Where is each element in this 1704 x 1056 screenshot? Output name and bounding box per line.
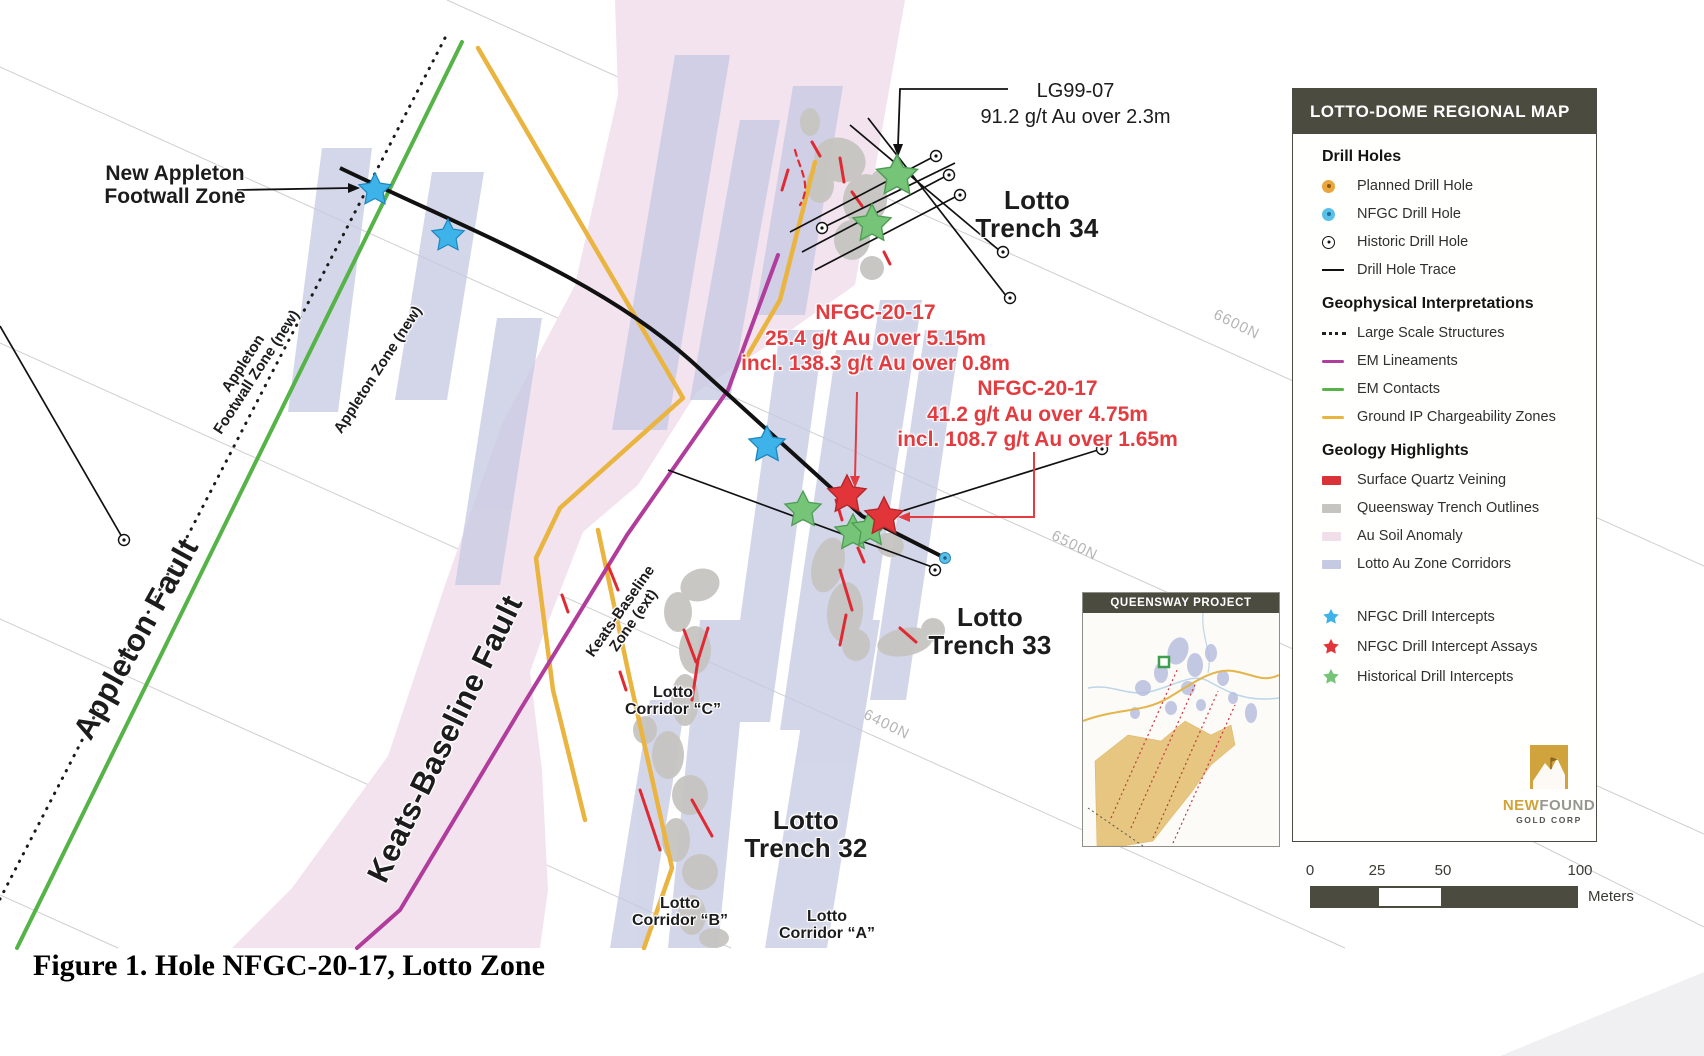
- queensway-project-inset-map: QUEENSWAY PROJECT: [1082, 592, 1280, 847]
- newfound-wordmark: NEWFOUND: [1499, 797, 1599, 814]
- annotation-lg99-07: LG99-07 91.2 g/t Au over 2.3m: [953, 78, 1198, 130]
- legend-section-drill-holes: Drill Holes: [1322, 148, 1588, 166]
- legend-item-trench-outlines: Queensway Trench Outlines: [1322, 494, 1588, 522]
- legend-item-em-lineaments: EM Lineaments: [1322, 347, 1588, 375]
- figure-caption: Figure 1. Hole NFGC-20-17, Lotto Zone: [33, 949, 545, 983]
- inset-location-marker: [1159, 657, 1169, 667]
- red-star-icon: [1322, 638, 1348, 656]
- legend-item-au-soil-anomaly: Au Soil Anomaly: [1322, 522, 1588, 550]
- em-contacts-icon: [1322, 388, 1348, 391]
- inset-title: QUEENSWAY PROJECT: [1083, 593, 1279, 613]
- label-lotto-corridor-a: Lotto Corridor “A”: [752, 908, 902, 943]
- scale-tick-0: 0: [1306, 862, 1314, 879]
- nfgc-drill-hole-collar: [940, 553, 951, 564]
- annotation-nfgc-20-17-b: NFGC-20-17 41.2 g/t Au over 4.75m incl. …: [885, 376, 1190, 453]
- legend-item-planned-drill-hole: Planned Drill Hole: [1322, 172, 1588, 200]
- label-new-appleton-footwall-zone: New Appleton Footwall Zone: [95, 163, 255, 208]
- legend-item-ground-ip: Ground IP Chargeability Zones: [1322, 403, 1588, 431]
- newfound-logo-mark: [1530, 745, 1568, 789]
- label-lotto-corridor-c: Lotto Corridor “C”: [598, 684, 748, 719]
- planned-drill-hole-icon: [1322, 180, 1348, 193]
- historic-drill-hole-icon: [1322, 236, 1348, 249]
- label-lotto-trench-33: Lotto Trench 33: [890, 603, 1090, 659]
- scale-unit-label: Meters: [1588, 888, 1634, 905]
- scale-bar: 0 25 50 100 Meters: [1285, 860, 1704, 920]
- legend-item-historical-intercepts: Historical Drill Intercepts: [1322, 662, 1588, 692]
- figure-canvas: New Appleton Footwall Zone Appleton Foot…: [0, 0, 1704, 1056]
- legend-panel: LOTTO-DOME REGIONAL MAP Drill Holes Plan…: [1292, 88, 1597, 842]
- blue-star-icon: [1322, 608, 1348, 626]
- legend-item-lotto-corridors: Lotto Au Zone Corridors: [1322, 550, 1588, 578]
- label-lotto-trench-34: Lotto Trench 34: [937, 186, 1137, 242]
- queensway-trench-outlines-icon: [1322, 504, 1348, 513]
- legend-item-drill-hole-trace: Drill Hole Trace: [1322, 256, 1588, 284]
- newfound-gold-logo: NEWFOUND GOLD CORP: [1499, 745, 1599, 825]
- legend-section-geophysical: Geophysical Interpretations: [1322, 295, 1588, 313]
- label-lotto-corridor-b: Lotto Corridor “B”: [605, 895, 755, 930]
- au-soil-anomaly-icon: [1322, 532, 1348, 541]
- legend-section-geology: Geology Highlights: [1322, 442, 1588, 460]
- legend-item-surface-quartz: Surface Quartz Veining: [1322, 466, 1588, 494]
- surface-quartz-veining-icon: [1322, 476, 1348, 485]
- ground-ip-chargeability-icon: [1322, 416, 1348, 419]
- scale-tick-25: 25: [1369, 862, 1386, 879]
- annotation-nfgc-20-17-a: NFGC-20-17 25.4 g/t Au over 5.15m incl. …: [723, 300, 1028, 377]
- legend-title: LOTTO-DOME REGIONAL MAP: [1293, 89, 1596, 134]
- legend-item-nfgc-intercepts: NFGC Drill Intercepts: [1322, 602, 1588, 632]
- em-lineaments-icon: [1322, 360, 1348, 363]
- legend-item-large-scale-structures: Large Scale Structures: [1322, 319, 1588, 347]
- legend-item-em-contacts: EM Contacts: [1322, 375, 1588, 403]
- label-lotto-trench-32: Lotto Trench 32: [706, 806, 906, 862]
- nfgc-drill-hole-icon: [1322, 208, 1348, 221]
- lotto-au-zone-corridors-icon: [1322, 560, 1348, 569]
- gold-corp-subtitle: GOLD CORP: [1499, 815, 1599, 825]
- legend-item-nfgc-intercept-assays: NFGC Drill Intercept Assays: [1322, 632, 1588, 662]
- large-scale-structures-icon: [1322, 332, 1348, 335]
- green-star-icon: [1322, 668, 1348, 686]
- page-corner-wedge: [1500, 972, 1704, 1056]
- inset-map-graphic: [1083, 613, 1279, 846]
- scale-tick-100: 100: [1567, 862, 1592, 879]
- scale-bar-middle-segment: [1377, 886, 1443, 908]
- legend-item-historic-drill-hole: Historic Drill Hole: [1322, 228, 1588, 256]
- scale-tick-50: 50: [1435, 862, 1452, 879]
- drill-hole-trace-icon: [1322, 269, 1348, 271]
- legend-item-nfgc-drill-hole: NFGC Drill Hole: [1322, 200, 1588, 228]
- scale-bar-band: [1310, 886, 1578, 908]
